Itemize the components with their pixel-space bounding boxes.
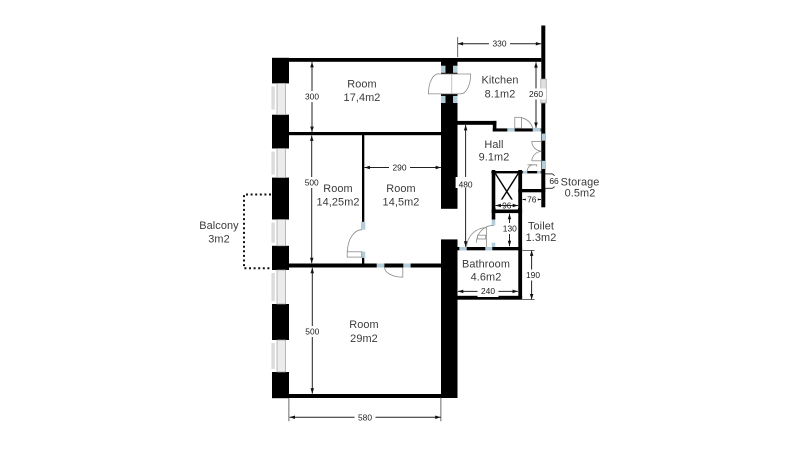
svg-text:0.5m2: 0.5m2 — [565, 187, 596, 199]
svg-text:Bathroom: Bathroom — [462, 259, 510, 271]
svg-text:Room: Room — [323, 183, 352, 195]
svg-text:Hall: Hall — [484, 139, 503, 151]
svg-text:480: 480 — [459, 179, 473, 189]
svg-text:300: 300 — [305, 92, 319, 102]
svg-text:Toilet: Toilet — [528, 220, 554, 232]
svg-text:500: 500 — [305, 178, 319, 188]
svg-text:9.1m2: 9.1m2 — [479, 152, 510, 164]
svg-text:260: 260 — [529, 89, 543, 99]
svg-text:76: 76 — [527, 194, 537, 204]
svg-text:Room: Room — [347, 79, 376, 91]
svg-text:190: 190 — [526, 270, 540, 280]
svg-text:240: 240 — [481, 286, 495, 296]
svg-text:66: 66 — [549, 176, 559, 186]
svg-text:29m2: 29m2 — [350, 333, 378, 345]
svg-text:500: 500 — [305, 327, 319, 337]
svg-text:580: 580 — [358, 412, 372, 422]
svg-text:130: 130 — [503, 224, 517, 234]
svg-text:8.1m2: 8.1m2 — [485, 89, 516, 101]
svg-text:Room: Room — [349, 319, 378, 331]
svg-text:4.6m2: 4.6m2 — [471, 272, 502, 284]
svg-text:3m2: 3m2 — [208, 233, 230, 245]
svg-text:17,4m2: 17,4m2 — [344, 92, 381, 104]
svg-text:14,5m2: 14,5m2 — [383, 196, 420, 208]
svg-text:Balcony: Balcony — [199, 220, 239, 232]
svg-text:1.3m2: 1.3m2 — [526, 232, 557, 244]
svg-text:Kitchen: Kitchen — [481, 75, 518, 87]
svg-text:330: 330 — [493, 39, 507, 49]
svg-text:14,25m2: 14,25m2 — [316, 196, 359, 208]
svg-text:Room: Room — [386, 183, 415, 195]
svg-text:96: 96 — [502, 200, 512, 210]
svg-text:290: 290 — [393, 163, 407, 173]
